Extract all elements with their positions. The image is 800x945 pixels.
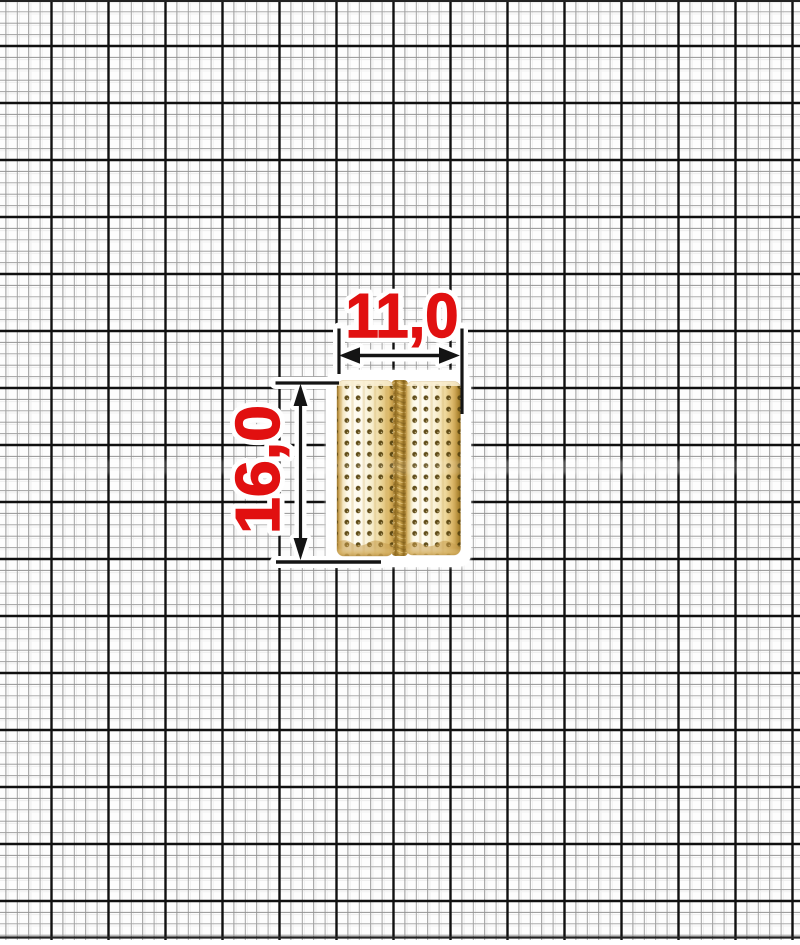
svg-text:16,0: 16,0 <box>224 405 293 534</box>
svg-text:11,0: 11,0 <box>346 282 459 351</box>
